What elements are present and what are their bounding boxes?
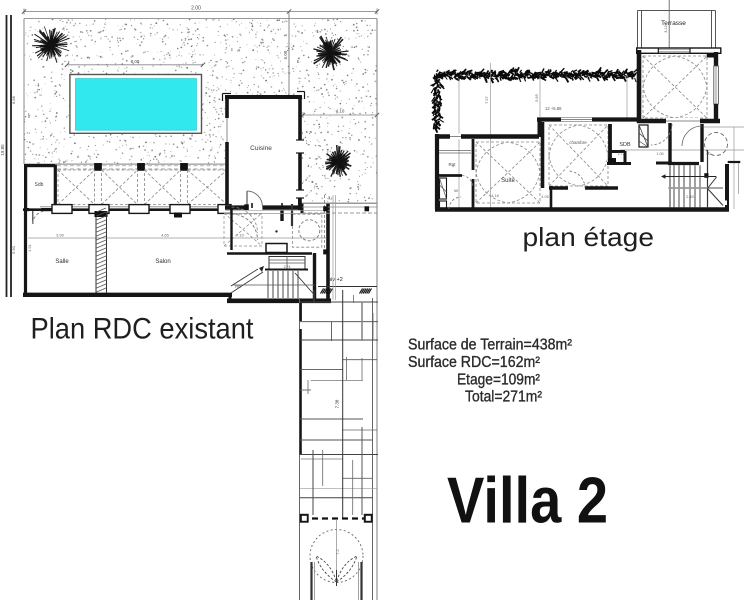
svg-text:Surface de Terrain=438m²: Surface de Terrain=438m²	[408, 337, 572, 354]
svg-text:8.88: 8.88	[11, 95, 16, 104]
svg-text:Sdb: Sdb	[35, 182, 44, 188]
svg-text:7.57: 7.57	[484, 95, 489, 104]
svg-text:4.65: 4.65	[161, 233, 170, 238]
svg-text:2.74: 2.74	[284, 265, 291, 269]
svg-text:3.90: 3.90	[56, 233, 65, 238]
svg-text:19.85: 19.85	[0, 144, 5, 156]
svg-text:Plan RDC existant: Plan RDC existant	[31, 313, 255, 346]
svg-text:Suite: Suite	[501, 178, 515, 184]
svg-text:Salle: Salle	[55, 259, 69, 265]
svg-text:1.77: 1.77	[618, 152, 625, 156]
svg-text:5.90: 5.90	[11, 245, 16, 254]
svg-text:Surface RDC=162m²: Surface RDC=162m²	[408, 354, 540, 371]
svg-text:7.38: 7.38	[335, 399, 340, 408]
svg-text:4.05: 4.05	[541, 195, 548, 199]
svg-text:Cuisine: Cuisine	[250, 145, 272, 152]
svg-text:Rgt: Rgt	[448, 162, 456, 167]
svg-text:SDB: SDB	[619, 142, 631, 148]
svg-text:1.91: 1.91	[27, 243, 32, 252]
svg-text:7.2: 7.2	[335, 548, 340, 554]
svg-text:4.18: 4.18	[491, 194, 498, 198]
svg-text:7.10: 7.10	[236, 233, 245, 238]
svg-text:8.00: 8.00	[131, 59, 140, 64]
svg-text:W: W	[454, 188, 458, 193]
svg-text:Etage=109m²: Etage=109m²	[457, 372, 540, 389]
svg-text:plan étage: plan étage	[523, 222, 655, 252]
svg-text:2.00: 2.00	[191, 6, 201, 12]
svg-text:1.05: 1.05	[657, 152, 664, 156]
svg-text:3.12: 3.12	[664, 25, 668, 32]
svg-text:chambre: chambre	[569, 140, 587, 145]
svg-text:12 +5.88: 12 +5.88	[545, 106, 562, 111]
svg-text:4.10: 4.10	[336, 109, 345, 114]
svg-text:6.08: 6.08	[283, 50, 288, 59]
svg-text:5.85: 5.85	[534, 93, 539, 102]
svg-text:Total=271m²: Total=271m²	[465, 389, 542, 406]
svg-text:Villa 2: Villa 2	[447, 464, 608, 537]
svg-text:Salon: Salon	[155, 259, 170, 265]
